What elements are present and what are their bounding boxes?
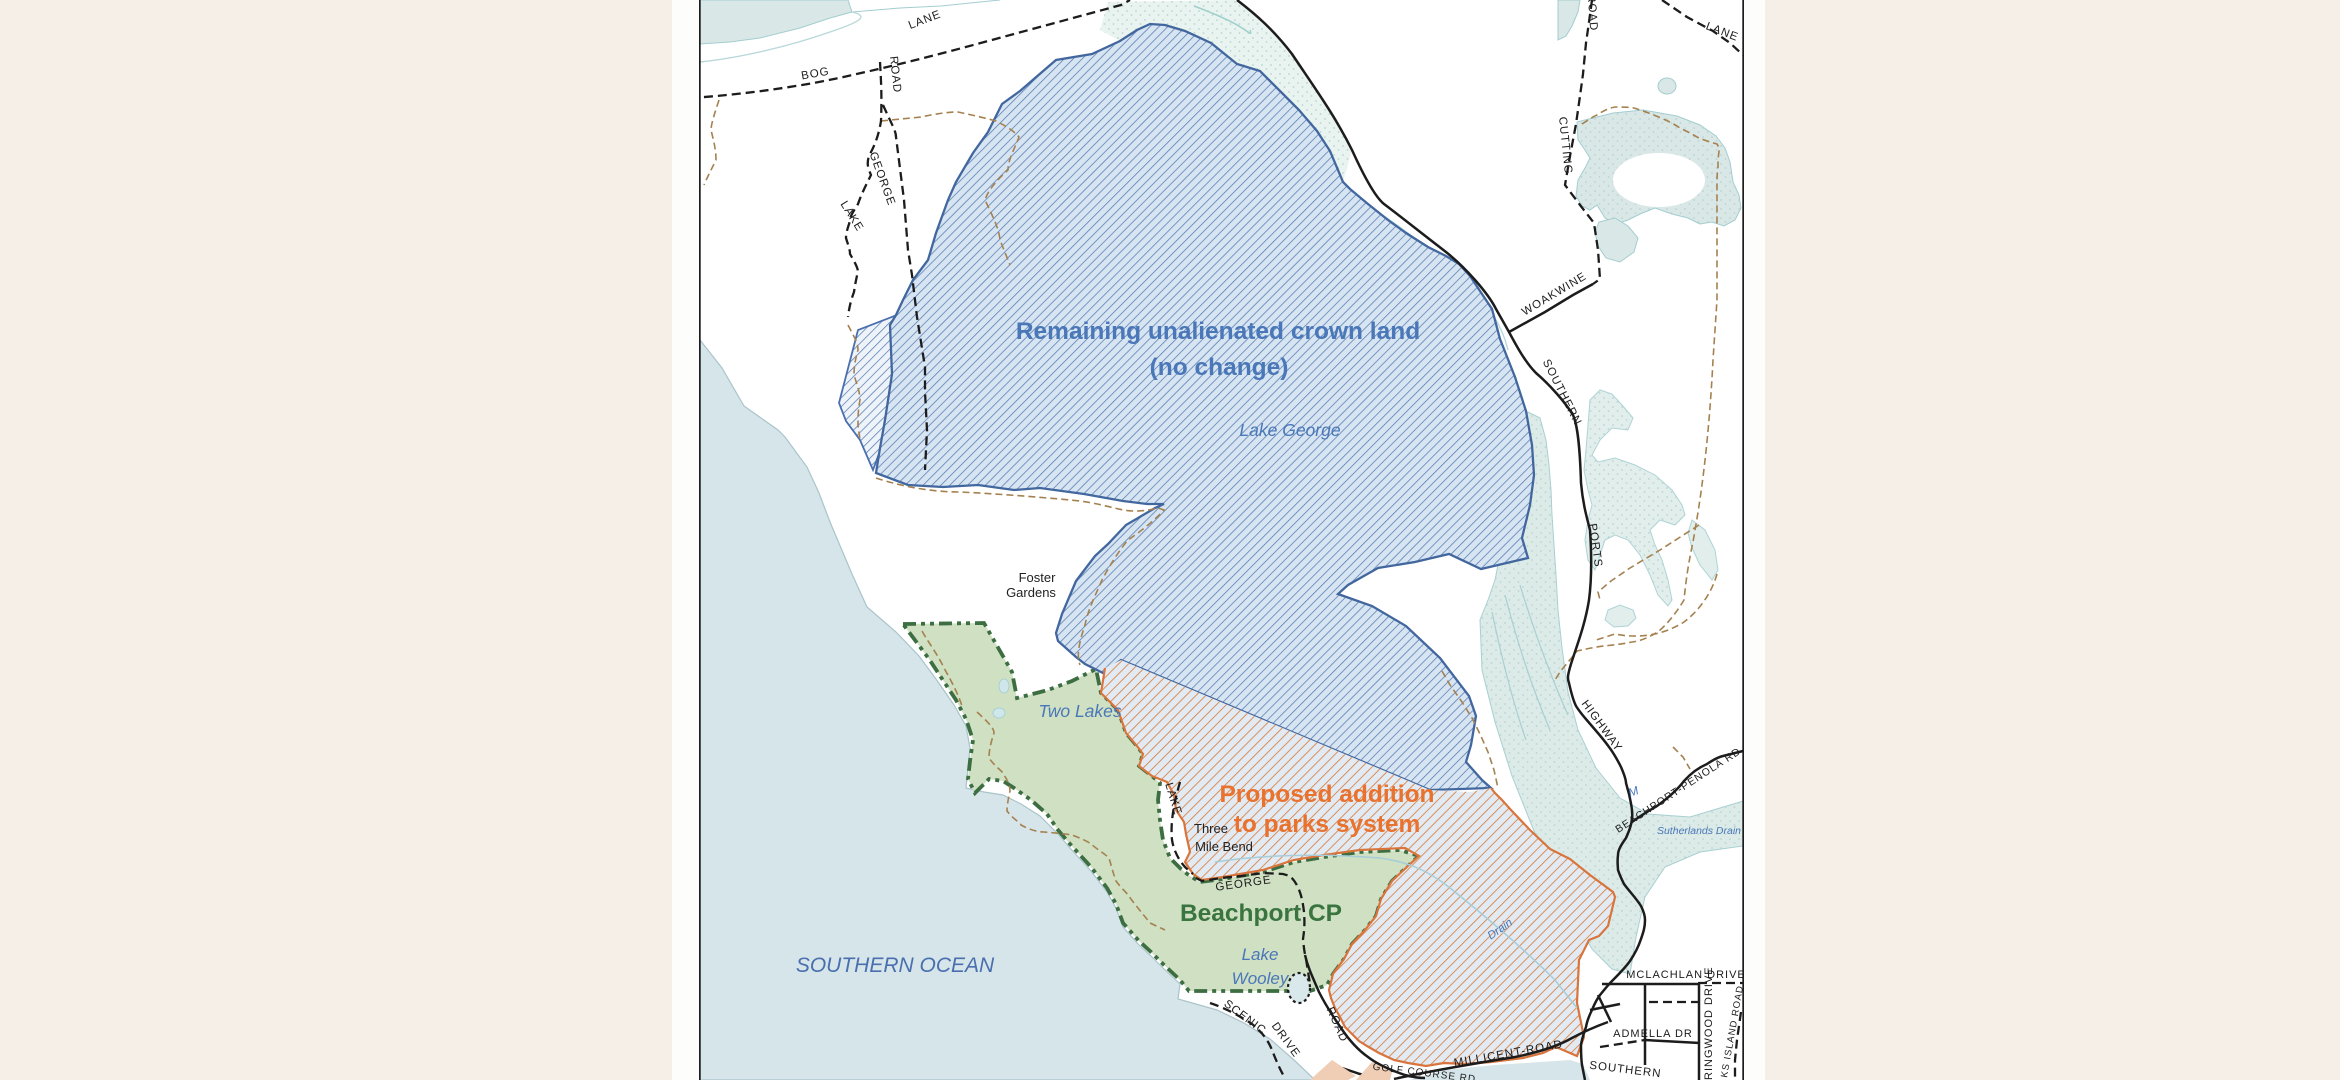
svg-text:Foster: Foster bbox=[1019, 570, 1057, 585]
svg-text:Proposed addition: Proposed addition bbox=[1219, 781, 1434, 808]
svg-text:RINGWOOD DRIVE: RINGWOOD DRIVE bbox=[1703, 966, 1715, 1080]
svg-text:MCLACHLAN DRIVE: MCLACHLAN DRIVE bbox=[1626, 969, 1746, 981]
svg-text:Two Lakes: Two Lakes bbox=[1038, 701, 1122, 721]
svg-text:SOUTHERN OCEAN: SOUTHERN OCEAN bbox=[796, 954, 995, 977]
svg-text:(no change): (no change) bbox=[1150, 354, 1289, 381]
svg-text:Mile Bend: Mile Bend bbox=[1195, 839, 1253, 854]
svg-text:Beachport CP: Beachport CP bbox=[1180, 900, 1342, 927]
svg-text:ADMELLA DR: ADMELLA DR bbox=[1613, 1028, 1693, 1040]
svg-text:Sutherlands Drain: Sutherlands Drain bbox=[1657, 825, 1741, 837]
svg-text:Lake George: Lake George bbox=[1239, 420, 1340, 440]
svg-text:Gardens: Gardens bbox=[1006, 585, 1056, 600]
svg-text:Three: Three bbox=[1194, 821, 1228, 836]
svg-text:Lake: Lake bbox=[1242, 945, 1279, 964]
svg-text:Wooley: Wooley bbox=[1232, 969, 1290, 988]
svg-text:to parks system: to parks system bbox=[1234, 811, 1421, 838]
svg-text:Remaining unalienated crown la: Remaining unalienated crown land bbox=[1016, 318, 1420, 345]
